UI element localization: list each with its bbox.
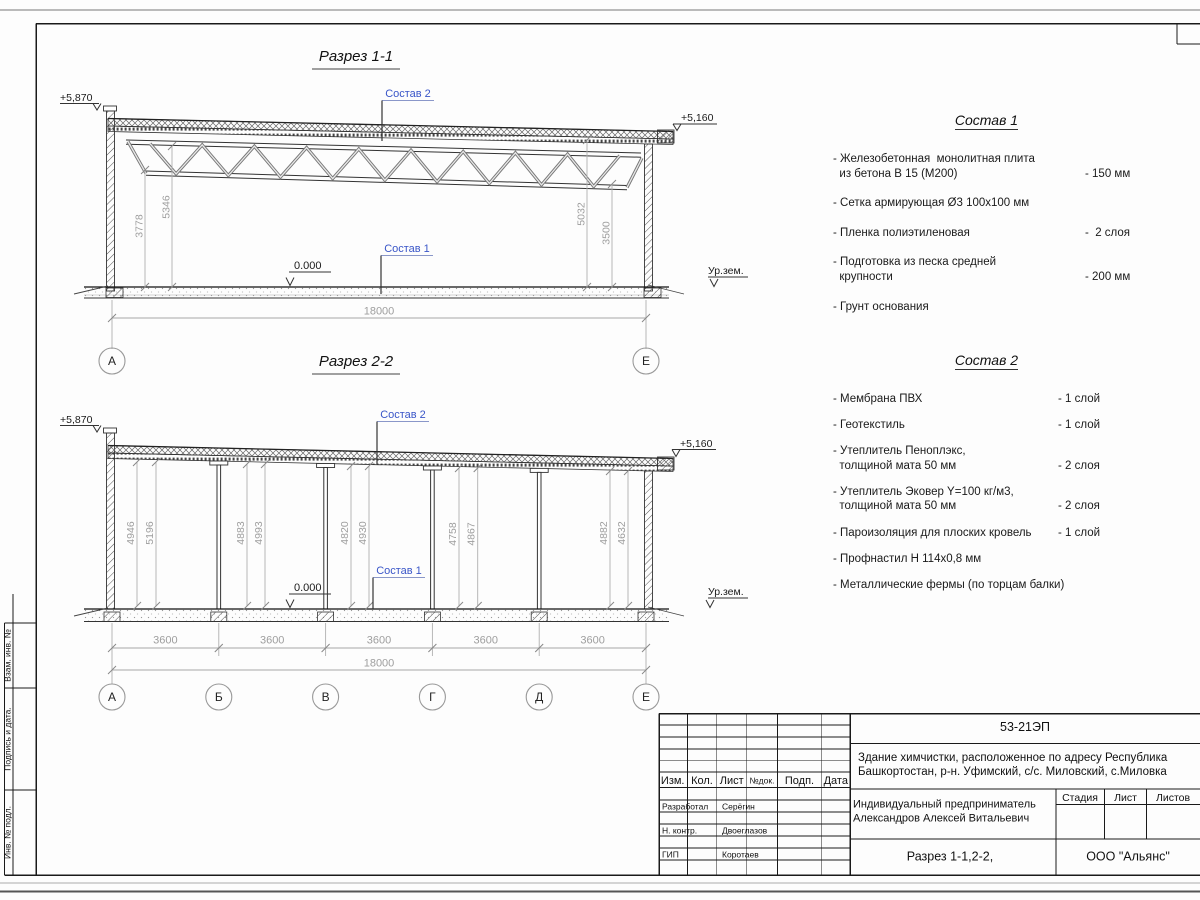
dim-ticks (141, 136, 616, 291)
svg-text:Ур.зем.: Ур.зем. (708, 265, 744, 277)
dim-label: 4820 (339, 521, 351, 545)
svg-text:+5,870: +5,870 (60, 92, 93, 104)
svg-text:Состав 1: Состав 1 (384, 243, 430, 255)
name-developed: Серёгин (722, 802, 755, 812)
svg-text:+5,160: +5,160 (680, 438, 713, 450)
header-list: Лист (720, 775, 744, 787)
header-podp: Подп. (785, 775, 814, 787)
zero-level-mark: 0.000 (286, 260, 331, 286)
wall-right (645, 471, 653, 609)
wall-right (645, 144, 653, 291)
axis-label: Б (215, 690, 223, 704)
dim-label: 4883 (235, 521, 247, 545)
dim-label: 4632 (616, 521, 628, 545)
span-dim-label: 3600 (474, 635, 498, 647)
column (537, 472, 541, 609)
floor-slab (74, 607, 684, 622)
span-dim-label: 3600 (260, 635, 284, 647)
company-name: ООО "Альянс" (1086, 850, 1170, 864)
dim-label: 4758 (447, 522, 459, 546)
axis-label: Г (429, 690, 436, 704)
name-gip: Коротаев (722, 850, 759, 860)
axis-bubbles (99, 684, 659, 710)
dim-label: 5346 (161, 195, 173, 219)
svg-text:0.000: 0.000 (294, 582, 322, 594)
column-capital (530, 468, 548, 472)
project-code: 53-21ЭП (1000, 720, 1050, 734)
sostav1-title: Состав 1 (833, 112, 1140, 128)
material-item: - Железобетонная монолитная плита из бет… (833, 152, 1140, 181)
sostav1-reference: Состав 1 (373, 565, 425, 609)
material-item: - Профнастил Н 114х0,8 мм (833, 552, 1140, 567)
roof-end-cap (658, 457, 675, 470)
axis-label: Д (535, 690, 543, 704)
role-developed: Разработал (662, 802, 708, 812)
section-title: Разрез 1-1 (319, 48, 393, 65)
header-izm: Изм. (661, 775, 685, 787)
elevation-mark-right: +5,160 (672, 438, 716, 457)
dim-total-label: 18000 (364, 306, 395, 318)
name-ncontrol: Двоеглазов (722, 826, 768, 836)
client-line2: Александров Алексей Витальевич (853, 813, 1029, 825)
dim-total-label: 18000 (364, 658, 395, 670)
material-item: - Сетка армирующая Ø3 100х100 мм (833, 196, 1140, 211)
dim-label: 5032 (576, 202, 588, 226)
svg-text:+5,160: +5,160 (681, 112, 714, 124)
svg-text:Состав 2: Состав 2 (380, 409, 426, 421)
svg-text:0.000: 0.000 (294, 260, 322, 272)
material-item: - Грунт основания (833, 300, 1140, 315)
span-dim-label: 3600 (153, 635, 177, 647)
margin-label: Взам. инв. № (3, 629, 13, 682)
wall-left (107, 111, 115, 291)
svg-text:+5,870: +5,870 (60, 414, 93, 426)
dim-label: 4882 (598, 521, 610, 545)
material-item: - Утеплитель Пеноплэкс, толщиной мата 50… (833, 444, 1140, 473)
section-1-1: 3778 5346 5032 3500 18000 А Е +5,870 +5,… (60, 48, 748, 374)
material-item: - Пароизоляция для плоских кровель - 1 с… (833, 526, 1140, 541)
footing-left (106, 288, 123, 298)
header-kol: Кол. (691, 775, 713, 787)
material-item: - Геотекстиль - 1 слой (833, 418, 1140, 433)
sheet-label: Лист (1114, 792, 1137, 804)
svg-text:Ур.зем.: Ур.зем. (708, 586, 744, 598)
header-data: Дата (824, 775, 849, 787)
svg-text:Состав 1: Состав 1 (376, 565, 422, 577)
ground-level-mark: Ур.зем. (708, 265, 748, 287)
sostav1-list: Состав 1 - Железобетонная монолитная пли… (833, 112, 1140, 329)
axis-label: А (108, 690, 116, 704)
object-name-line2: Башкортостан, р-н. Уфимский, с/с. Миловс… (858, 766, 1167, 778)
vertical-dim-lines (137, 462, 628, 606)
span-dim-label: 3600 (580, 635, 604, 647)
column (217, 465, 221, 609)
client-line1: Индивидуальный предприниматель (853, 799, 1036, 811)
material-item: - Утеплитель Эковер Y=100 кг/м3, толщино… (833, 485, 1140, 514)
header-ndok: №док. (750, 776, 775, 786)
margin-label: Инв. № подл. (3, 806, 13, 859)
axis-label: Е (642, 354, 650, 368)
dim-label: 5196 (144, 521, 156, 545)
axis-label: А (108, 354, 116, 368)
sheets-label: Листов (1156, 792, 1191, 804)
doc-title: Разрез 1-1,2-2, (907, 850, 993, 864)
footing-right (644, 288, 661, 298)
floor-slab (74, 285, 684, 298)
elevation-mark-left: +5,870 (60, 414, 101, 432)
role-gip: ГИП (662, 850, 679, 860)
ground-level-mark: Ур.зем. (706, 586, 748, 608)
roof-end-cap (658, 130, 675, 143)
truss (126, 140, 642, 190)
column (431, 470, 435, 609)
dim-label: 4946 (125, 521, 137, 545)
wall-left (107, 433, 115, 609)
dim-label: 4930 (357, 521, 369, 545)
dim-label: 4993 (253, 521, 265, 545)
dim-label: 3778 (134, 214, 146, 238)
stage-label: Стадия (1062, 792, 1098, 804)
drawing-sheet: 3778 5346 5032 3500 18000 А Е +5,870 +5,… (0, 0, 1200, 900)
wall-cap-left (104, 428, 117, 433)
column (324, 468, 328, 610)
material-item: - Подготовка из песка средней крупности … (833, 255, 1140, 284)
title-block-text: 53-21ЭП Здание химчистки, расположенное … (661, 720, 1191, 864)
wall-cap-left (104, 106, 117, 111)
section-title: Разрез 2-2 (319, 353, 394, 370)
material-item: - Металлические фермы (по торцам балки) (833, 578, 1140, 593)
horizontal-dim-rows (108, 623, 650, 684)
axis-label: Е (642, 690, 650, 704)
axis-label: В (322, 690, 330, 704)
margin-label: Подпись и дата. (3, 707, 13, 771)
span-dim-label: 3600 (367, 635, 391, 647)
section-2-2: 4946 5196 4883 4993 4820 4930 4758 4867 … (60, 353, 748, 710)
svg-text:Состав 2: Состав 2 (385, 88, 431, 100)
column-capital (317, 464, 335, 468)
sostav2-list: Состав 2 - Мембрана ПВХ - 1 слой - Геоте… (833, 352, 1140, 604)
material-item: - Пленка полиэтиленовая - 2 слоя (833, 226, 1140, 241)
column-capital (210, 461, 228, 465)
sostav2-title: Состав 2 (833, 352, 1140, 368)
dim-ticks (133, 458, 632, 610)
role-ncontrol: Н. контр. (662, 826, 697, 836)
column-capital (423, 466, 441, 470)
dim-label: 4867 (466, 522, 478, 546)
elevation-mark-right: +5,160 (673, 112, 717, 131)
dim-label: 3500 (601, 221, 613, 245)
elevation-mark-left: +5,870 (60, 92, 101, 110)
object-name-line1: Здание химчистки, расположенное по адрес… (858, 752, 1168, 764)
material-item: - Мембрана ПВХ - 1 слой (833, 392, 1140, 407)
